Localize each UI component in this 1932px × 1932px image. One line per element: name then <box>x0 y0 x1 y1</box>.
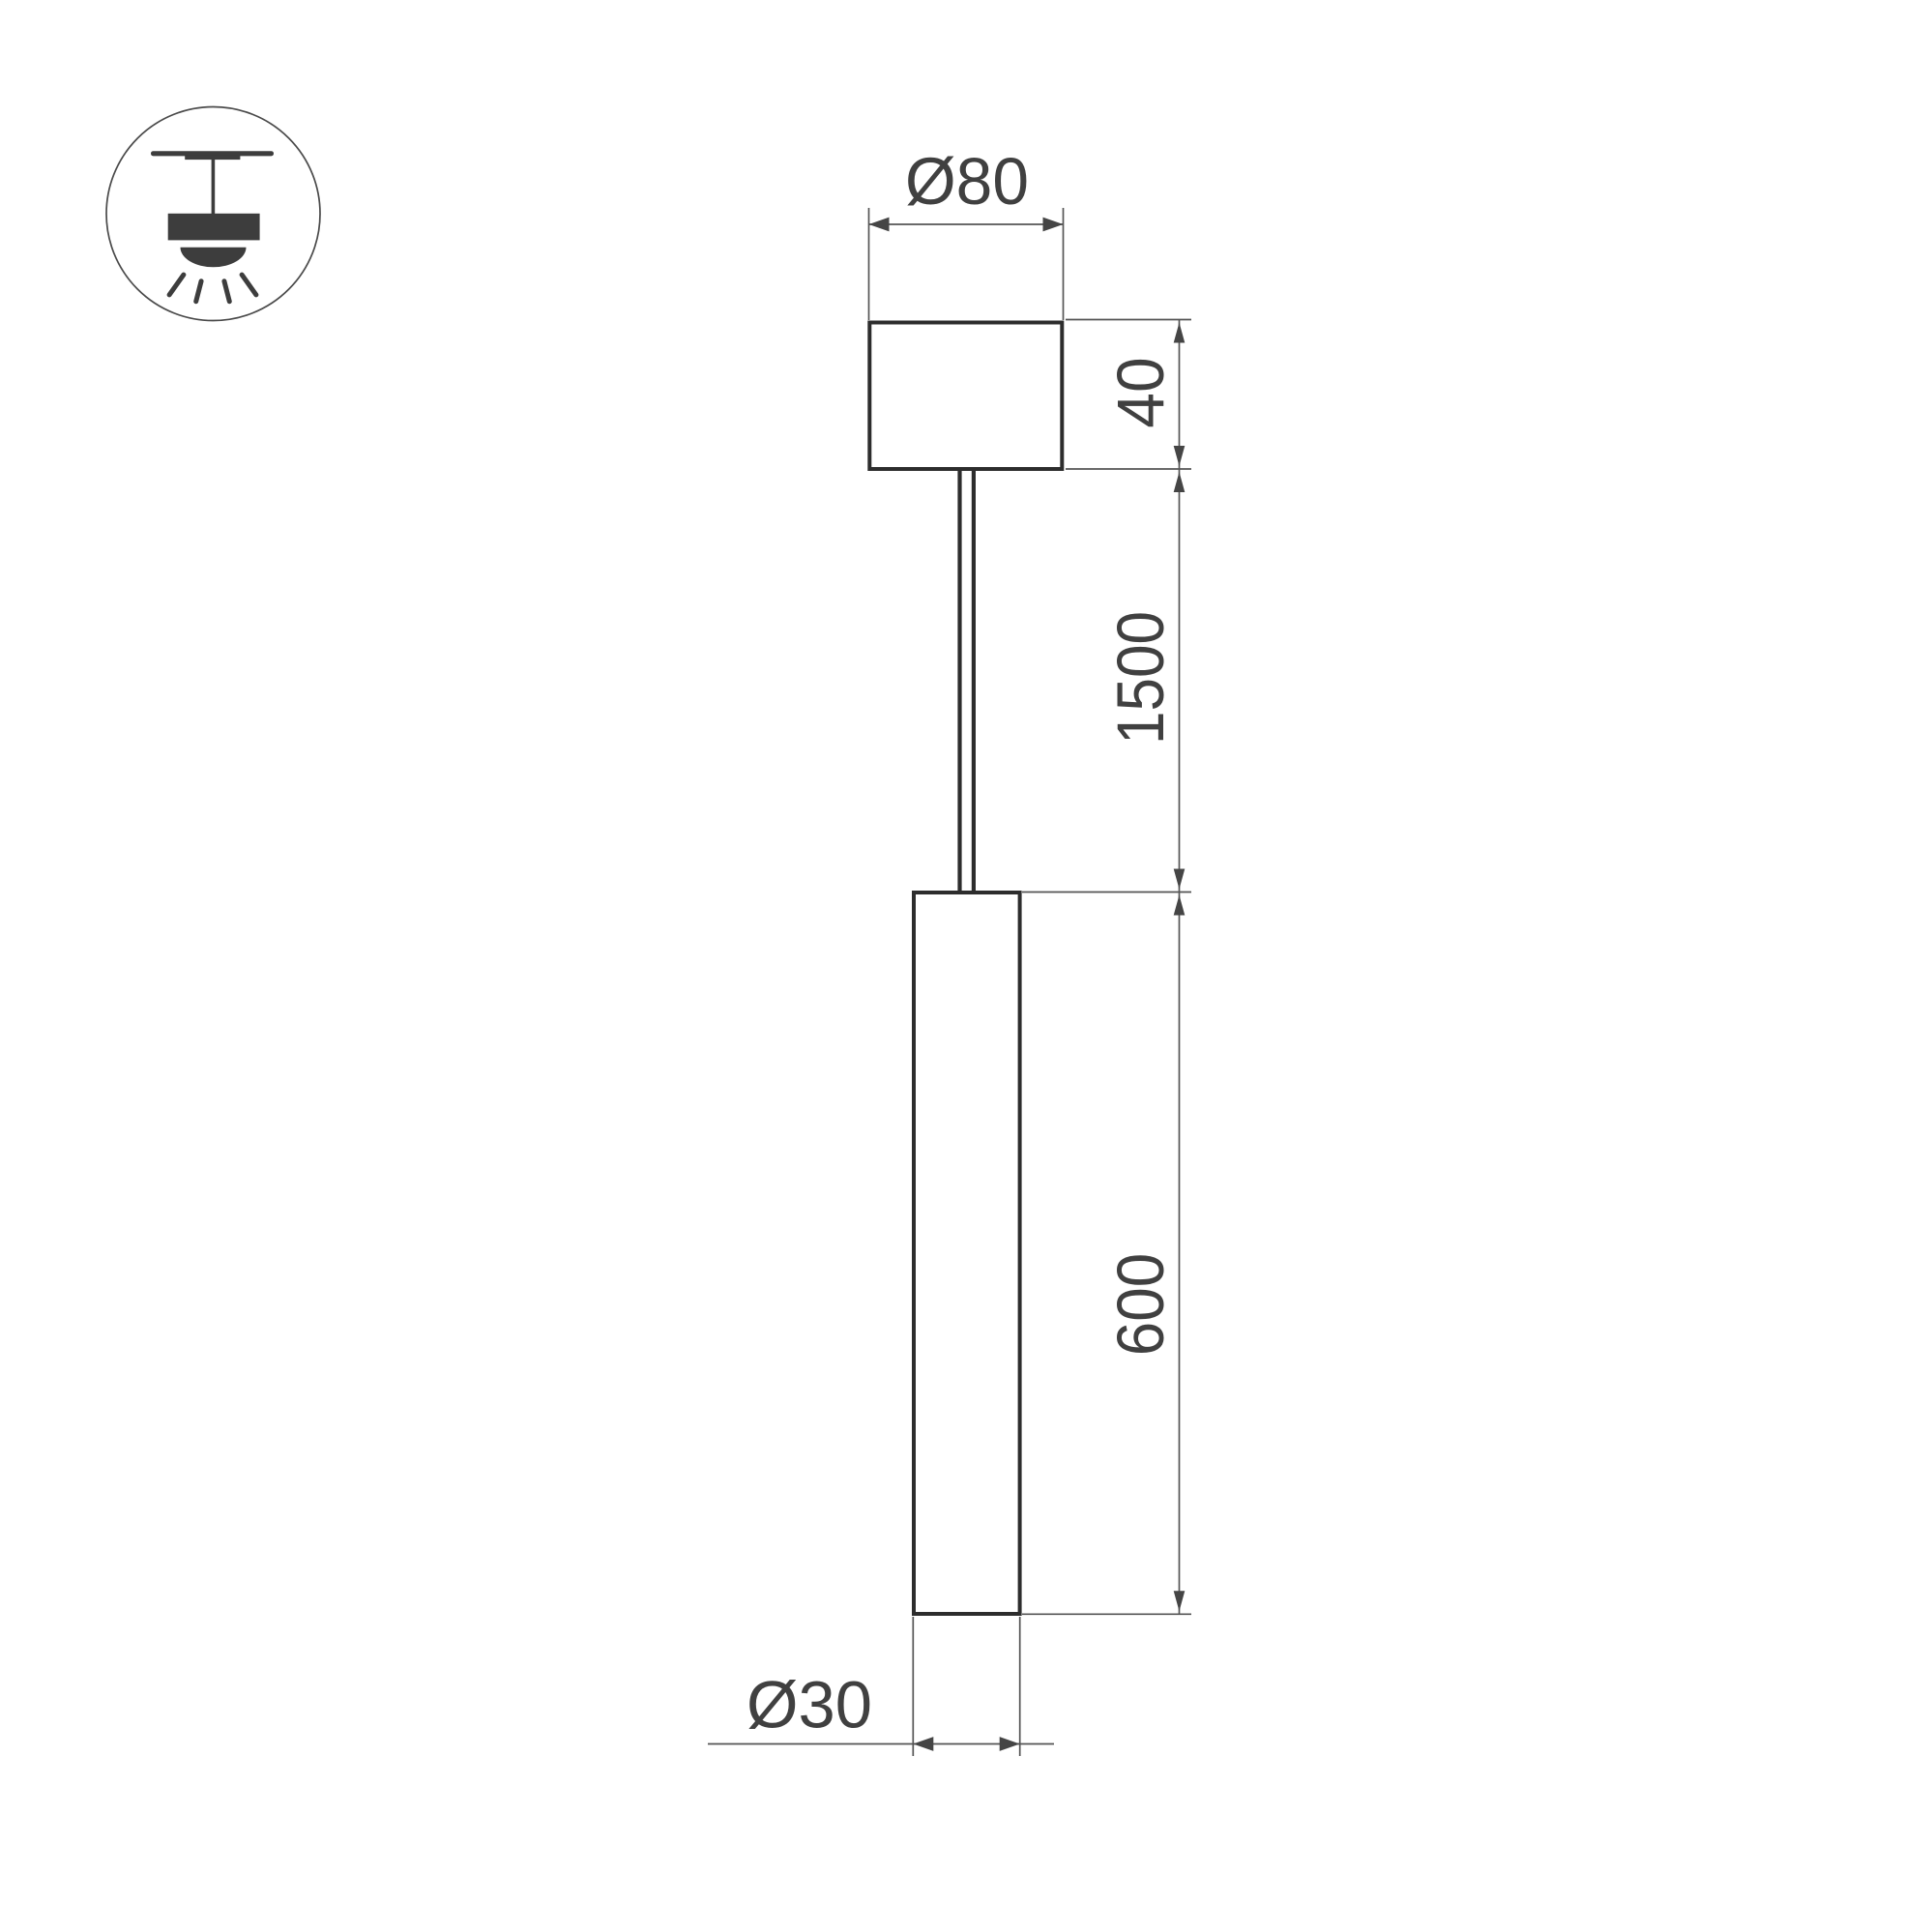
svg-text:Ø30: Ø30 <box>746 1668 872 1742</box>
svg-text:Ø80: Ø80 <box>905 144 1029 219</box>
svg-text:40: 40 <box>1103 357 1178 428</box>
svg-text:1500: 1500 <box>1103 611 1178 745</box>
svg-text:600: 600 <box>1103 1253 1178 1357</box>
